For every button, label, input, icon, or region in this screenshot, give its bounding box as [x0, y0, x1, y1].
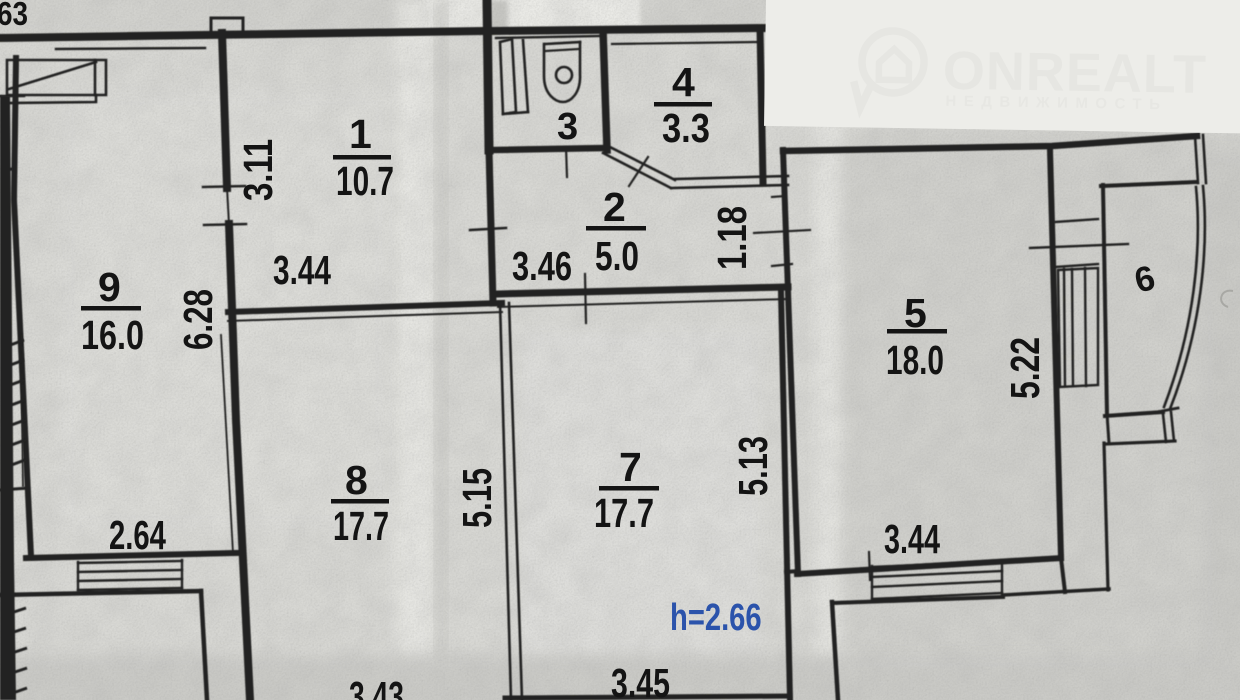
- svg-text:4: 4: [672, 59, 695, 105]
- svg-text:17.7: 17.7: [594, 490, 654, 536]
- svg-text:7: 7: [619, 444, 642, 490]
- svg-text:h=2.66: h=2.66: [670, 596, 762, 639]
- svg-text:8: 8: [345, 457, 368, 503]
- svg-text:9: 9: [98, 264, 121, 310]
- svg-text:2: 2: [603, 184, 626, 230]
- svg-text:3.44: 3.44: [273, 247, 331, 293]
- svg-text:5.0: 5.0: [595, 233, 639, 279]
- svg-text:3.46: 3.46: [512, 243, 572, 289]
- svg-text:16.0: 16.0: [81, 312, 144, 358]
- svg-text:НЕДВИЖИМОСТЬ: НЕДВИЖИМОСТЬ: [945, 93, 1167, 113]
- svg-text:10.7: 10.7: [336, 158, 394, 204]
- svg-text:5.15: 5.15: [454, 468, 500, 528]
- svg-text:17.7: 17.7: [333, 503, 389, 549]
- svg-text:3.43: 3.43: [349, 674, 404, 700]
- svg-text:5.22: 5.22: [1002, 337, 1048, 399]
- svg-text:63: 63: [0, 0, 28, 33]
- svg-text:5.13: 5.13: [730, 436, 776, 496]
- svg-text:2.64: 2.64: [109, 512, 166, 558]
- svg-text:1: 1: [349, 111, 372, 157]
- svg-text:18.0: 18.0: [886, 337, 944, 383]
- svg-text:3.3: 3.3: [662, 106, 710, 151]
- svg-text:3.11: 3.11: [234, 139, 280, 201]
- svg-text:6.28: 6.28: [175, 289, 221, 350]
- svg-text:3.45: 3.45: [611, 659, 670, 700]
- svg-text:3: 3: [557, 106, 578, 148]
- svg-text:1.18: 1.18: [708, 206, 754, 270]
- svg-text:3.44: 3.44: [884, 516, 940, 562]
